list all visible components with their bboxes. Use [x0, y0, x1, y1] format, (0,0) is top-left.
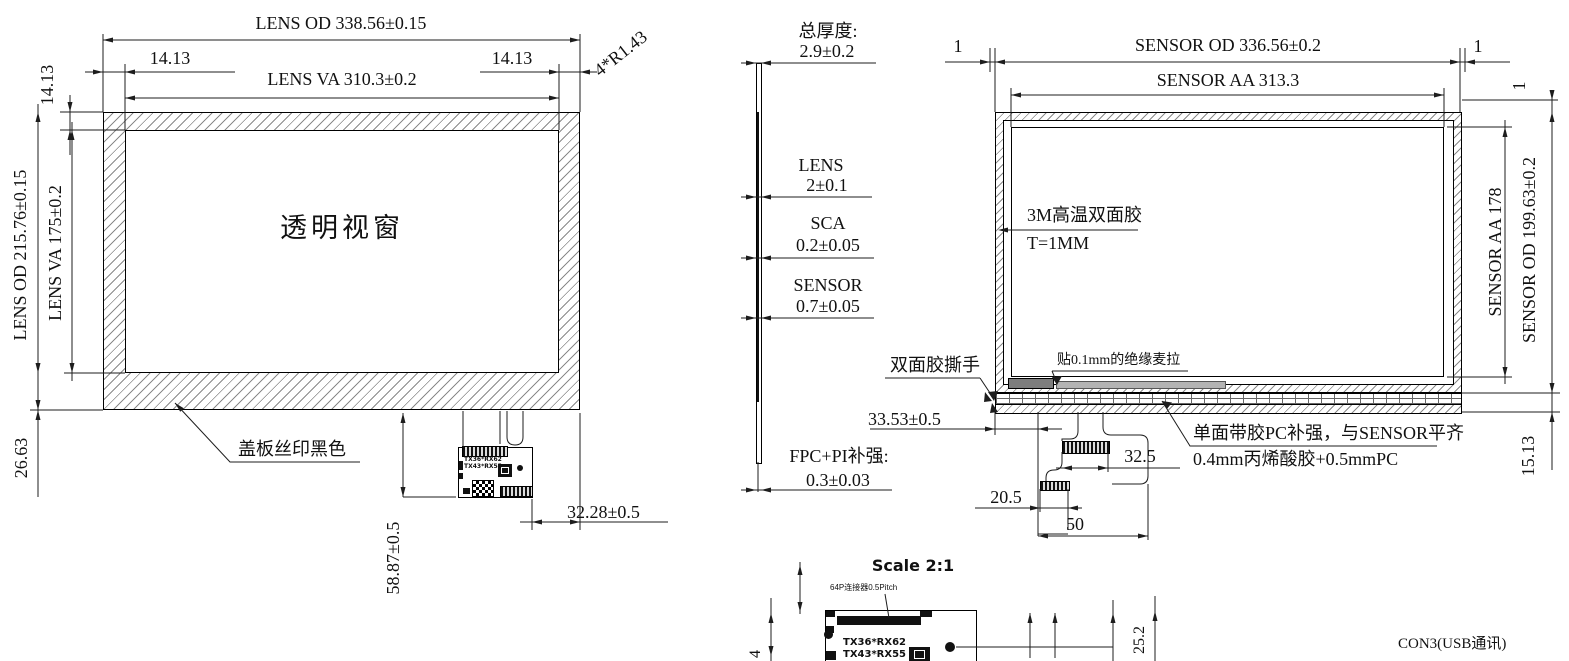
lens-va-width-dim: LENS VA 310.3±0.2 — [267, 70, 416, 90]
sensor-od-width-dim: SENSOR OD 336.56±0.2 — [1135, 36, 1321, 56]
lens-va-height-dim: LENS VA 175±0.2 — [46, 185, 66, 321]
stack-sensor-value: 0.7±0.05 — [796, 297, 860, 317]
con3-label: CON3(USB通讯) — [1398, 636, 1506, 653]
transparent-window-label: 透明视窗 — [280, 214, 404, 244]
tail-width-dim: 50 — [1066, 515, 1084, 535]
mylar-note: 贴0.1mm的绝缘麦拉 — [1057, 353, 1180, 368]
sensor-od-height-dim: SENSOR OD 199.63±0.2 — [1520, 157, 1540, 343]
sensor-bottom-margin-dim: 15.13 — [1519, 436, 1539, 477]
lens-margin-left-dim: 14.13 — [150, 49, 191, 69]
detail-scale-label: Scale 2:1 — [872, 557, 954, 575]
engineering-drawing-canvas: TX36*RX62 TX43*RX55 — [0, 0, 1569, 661]
sensor-aa-width-dim: SENSOR AA 313.3 — [1157, 71, 1300, 91]
tape-note-line1: 3M高温双面胶 — [1027, 206, 1142, 226]
detail-connector-note: 64P连接器0.5Pitch — [830, 584, 897, 593]
detail-tx-line1: TX36*RX62 — [843, 637, 906, 648]
front-view-dimension-lines — [30, 34, 668, 530]
stack-fpc-label: FPC+PI补强: — [789, 447, 888, 467]
upper-connector-width-dim: 32.5 — [1124, 447, 1156, 467]
lens-margin-right-dim: 14.13 — [492, 49, 533, 69]
lens-od-height-dim: LENS OD 215.76±0.15 — [11, 170, 31, 341]
tear-tab-note: 双面胶撕手 — [890, 356, 980, 376]
lens-margin-top-dim: 14.13 — [38, 65, 58, 106]
pc-note-line2: 0.4mm丙烯酸胶+0.5mmPC — [1193, 450, 1398, 470]
total-thickness-label: 总厚度: — [798, 22, 857, 42]
lens-od-width-dim: LENS OD 338.56±0.15 — [256, 14, 427, 34]
lower-connector-width-dim: 20.5 — [990, 488, 1022, 508]
tail-height-dim: 58.87±0.5 — [384, 522, 404, 595]
detail-view-dimension-lines — [769, 562, 1158, 661]
detail-left-dim: 4 — [747, 650, 765, 658]
lens-margin-bottom-dim: 26.63 — [12, 438, 32, 479]
stack-lens-value: 2±0.1 — [806, 176, 847, 196]
tail-offset-dim: 32.28±0.5 — [567, 503, 640, 523]
sensor-inset-right-dim: 1 — [1474, 37, 1483, 57]
sensor-inset-left-dim: 1 — [954, 37, 963, 57]
stack-sca-value: 0.2±0.05 — [796, 236, 860, 256]
stack-lens-label: LENS — [799, 156, 844, 176]
pc-note-line1: 单面带胶PC补强，与SENSOR平齐 — [1193, 424, 1464, 444]
total-thickness-value: 2.9±0.2 — [800, 42, 855, 62]
detail-tx-line2: TX43*RX55 — [843, 649, 906, 660]
cover-print-note: 盖板丝印黑色 — [238, 440, 346, 460]
stack-sensor-label: SENSOR — [793, 276, 862, 296]
tape-note-line2: T=1MM — [1027, 234, 1089, 254]
detail-height-dim: 25.2 — [1131, 626, 1149, 654]
dimension-linework — [0, 0, 1569, 661]
sensor-inset-top-dim: 1 — [1510, 82, 1530, 91]
fpc-offset-dim: 33.53±0.5 — [868, 410, 941, 430]
stack-fpc-value: 0.3±0.03 — [806, 471, 870, 491]
sensor-aa-height-dim: SENSOR AA 178 — [1486, 187, 1506, 316]
stack-sca-label: SCA — [810, 214, 845, 234]
